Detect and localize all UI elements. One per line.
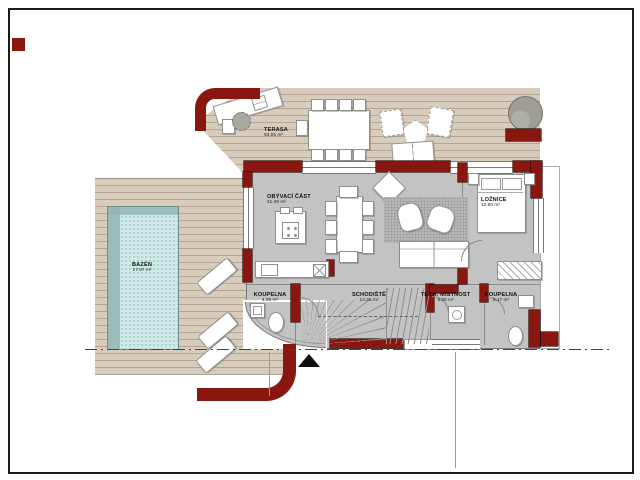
kitchen-island (275, 211, 306, 244)
wall-segment (541, 332, 558, 346)
toilet (268, 312, 284, 333)
dining-chair (362, 220, 374, 235)
dining-chair (325, 201, 337, 216)
room-label-bazen: BAZÉN 17.97 m² (118, 262, 166, 273)
terrace-chair (296, 120, 308, 136)
island-fixture (293, 207, 303, 214)
terrace-chair (325, 149, 338, 161)
dining-chair (362, 239, 374, 254)
room-label-obyvaci-cast: OBÝVACÍ ČÁST 41.49 m² (267, 194, 311, 205)
room-label-schodiste: SCHODIŠTĚ 14.26 m² (345, 292, 393, 303)
room-area: 41.49 m² (267, 200, 311, 206)
pillow (502, 178, 522, 190)
dining-chair (339, 186, 358, 198)
wall-segment (244, 161, 302, 172)
wall-segment (506, 129, 541, 141)
terrace-chair (339, 99, 352, 111)
section-line (455, 352, 456, 468)
blanket-line (478, 192, 523, 193)
wall-segment (376, 161, 450, 172)
room-label-loznice: LOŽNICE 12.80 m² (481, 197, 507, 208)
room-area: 17.97 m² (118, 268, 166, 274)
floor-plan: TERASA 93.05 m² OBÝVACÍ ČÁST 41.49 m² LO… (0, 0, 640, 480)
wall-corner-curved (197, 344, 296, 401)
room-area: 4.08 m² (246, 298, 294, 304)
swimming-pool (107, 206, 179, 350)
basin (253, 306, 262, 315)
island-fixture (280, 207, 290, 214)
terrace-chair (339, 149, 352, 161)
appliance (313, 264, 326, 277)
dining-chair (339, 251, 358, 263)
nightstand (468, 173, 479, 185)
wardrobe (497, 261, 542, 280)
sink (250, 303, 265, 318)
room-label-koupelna-2: KOUPELNA 5.17 m² (477, 292, 525, 303)
terrace-chair (325, 99, 338, 111)
room-area: 93.05 m² (264, 133, 288, 139)
pillow (481, 178, 501, 190)
legend-mark (12, 38, 25, 51)
dining-chair (362, 201, 374, 216)
room-area: 5.17 m² (477, 298, 525, 304)
terrace-chair (311, 99, 324, 111)
glass-wall (243, 187, 254, 249)
sofa (399, 241, 469, 268)
room-area: 14.26 m² (345, 298, 393, 304)
wall-corner-curved (195, 88, 260, 131)
room-label-terasa: TERASA 93.05 m² (264, 127, 288, 138)
wall-segment (243, 172, 252, 187)
dining-table (336, 196, 363, 253)
kitchen-counter (255, 261, 329, 278)
nightstand (524, 173, 535, 185)
toilet (508, 326, 523, 346)
washing-machine (448, 306, 465, 323)
terrace-armchair (379, 109, 404, 138)
sliding-door (302, 161, 376, 174)
north-arrow-icon (298, 354, 320, 367)
partition-line (245, 284, 540, 285)
room-area: 12.80 m² (481, 203, 507, 209)
wall-segment (458, 163, 467, 182)
stairs-fan (302, 300, 386, 345)
wall-segment (243, 249, 252, 282)
side-path (540, 166, 560, 349)
tree-icon (508, 96, 543, 131)
terrace-dining-table (308, 110, 370, 150)
room-label-koupelna-1: KOUPELNA 4.08 m² (246, 292, 294, 303)
terrace-armchair (426, 106, 454, 138)
drum (452, 310, 462, 320)
property-line (85, 349, 612, 350)
stairs-walkline (318, 316, 418, 317)
dining-chair (325, 220, 337, 235)
terrace-chair (353, 149, 366, 161)
wall-segment (529, 310, 540, 347)
dining-chair (325, 239, 337, 254)
pool-ledge (108, 207, 120, 349)
terrace-chair (353, 99, 366, 111)
room-label-tech-mistnost: TECH. MÍSTNOST 5.06 m² (420, 292, 471, 303)
room-area: 5.06 m² (420, 298, 471, 304)
window (533, 198, 544, 253)
section-line (269, 352, 270, 396)
pool-ledge (108, 207, 178, 215)
terrace-chair (311, 149, 324, 161)
kitchen-sink (261, 264, 278, 276)
cooktop (282, 222, 299, 239)
